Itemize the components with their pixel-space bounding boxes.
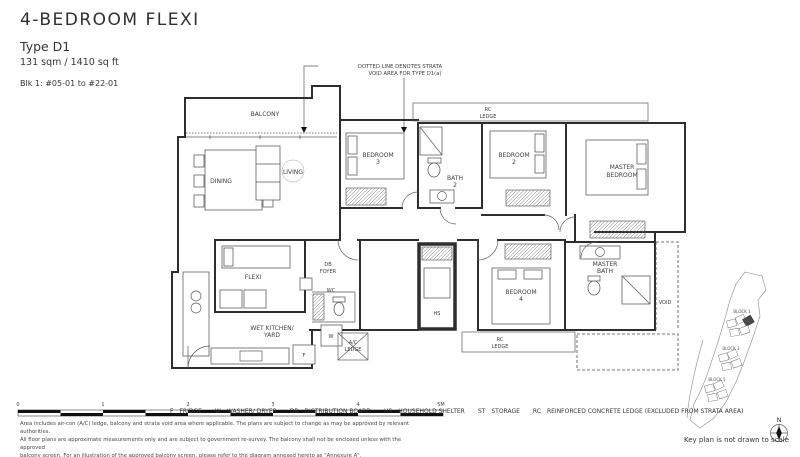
legend-abbr-rc: RC (533, 408, 541, 415)
room-label-master-bath-1: MASTER (593, 261, 618, 268)
basin (300, 278, 312, 290)
toilet-tank (588, 276, 600, 281)
washer-label: W (329, 334, 334, 340)
kitchen-counter (183, 272, 209, 356)
annotation-line1: DOTTED LINE DENOTES STRATA (358, 64, 443, 70)
rc-ledge-top: RC LEDGE (413, 103, 648, 121)
rc-ledge-top-label1: RC (485, 107, 492, 113)
toilet (588, 281, 600, 295)
legend-abbr-w: W (215, 408, 221, 415)
flexi-room: FLEXI (220, 246, 290, 308)
compass-north-label: N (777, 416, 782, 424)
void-dashed-outline (577, 334, 678, 370)
bedroom-3: BEDROOM 3 (346, 133, 418, 208)
disclaimer-line3: balcony screen. For an illustration of t… (20, 452, 420, 457)
room-label-bath2-1: BATH (447, 175, 463, 182)
key-plan-note: Key plan is not drawn to scale (684, 436, 789, 444)
bedroom-4: BEDROOM 4 (478, 240, 551, 324)
site-road (687, 340, 703, 418)
disclaimer: Area includes air-con (A/C) ledge, balco… (20, 420, 420, 457)
balcony: BALCONY (186, 111, 337, 139)
floor-plan-page: 4-BEDROOM FLEXI Type D1 131 sqm / 1410 s… (0, 0, 800, 457)
room-label-balcony: BALCONY (251, 111, 280, 118)
legend-abbr-st: ST (478, 408, 485, 415)
foyer: DB FOYER (300, 240, 358, 290)
toilet (428, 163, 440, 177)
bath-2: BATH 2 (420, 127, 463, 224)
master-bedroom: MASTER BEDROOM (560, 140, 648, 238)
room-label-bath2-2: 2 (453, 182, 457, 189)
door-arc (544, 215, 559, 230)
disclaimer-line2: All floor plans are approximate measurem… (20, 436, 420, 452)
wardrobe (590, 221, 645, 238)
leader-arrow-icon (301, 127, 307, 133)
master-bath: MASTER BATH (580, 242, 650, 304)
room-label-bedroom2-2: 2 (512, 159, 516, 166)
room-label-bedroom4-1: BEDROOM (505, 289, 536, 296)
legend-label-washer-dryer: WASHER/ DRYER (227, 408, 277, 415)
room-label-wet-kitchen-2: YARD (263, 332, 280, 339)
tv-console (256, 146, 280, 200)
rc-ledge-bottom: RC LEDGE (462, 332, 575, 352)
key-plan-block3-label: BLOCK 3 (722, 346, 740, 351)
shower-tiles (313, 294, 324, 320)
door-arc (402, 192, 418, 208)
wardrobe (505, 244, 551, 259)
legend-label-rc-ledge: REINFORCED CONCRETE LEDGE (EXCLUDED FROM… (547, 408, 743, 415)
ac-ledge-label1: A/C (349, 340, 358, 346)
key-plan: BLOCK 1 BLOCK 3 BLOCK 5 (687, 272, 766, 428)
legend-label-distribution-board: DISTRIBUTION BOARD (305, 408, 371, 415)
scale-tick-0: 0 (16, 402, 19, 408)
room-label-bedroom3-2: 3 (376, 159, 380, 166)
room-label-db: DB (324, 262, 332, 268)
room-label-void: VOID (659, 300, 672, 306)
room-label-master-1: MASTER (610, 164, 635, 171)
disclaimer-line1: Area includes air-con (A/C) ledge, balco… (20, 420, 420, 436)
shelf (422, 247, 452, 260)
room-label-flexi: FLEXI (245, 274, 262, 281)
key-plan-block1-label: BLOCK 1 (733, 309, 751, 314)
wc: WC (312, 288, 355, 322)
door-arc (560, 217, 575, 232)
door-arc (478, 240, 498, 260)
scale-tick-1: 1 (101, 402, 104, 408)
rc-ledge-bottom-label2: LEDGE (492, 344, 509, 350)
room-label-master-bath-2: BATH (597, 268, 613, 275)
legend-abbr-hs: HS (384, 408, 392, 415)
room-label-bedroom3-1: BEDROOM (362, 152, 393, 159)
toilet-tank (428, 158, 441, 163)
wardrobe (506, 190, 550, 206)
legend-label-fridge: FRIDGE (179, 408, 201, 415)
cabinet (244, 290, 266, 308)
vanity (580, 246, 620, 259)
toilet-tank (333, 297, 345, 302)
room-label-master-2: BEDROOM (606, 172, 637, 179)
room-label-living: LIVING (283, 169, 303, 176)
room-label-dining: DINING (210, 178, 232, 185)
door-arc (440, 208, 456, 224)
legend: FFRIDGE WWASHER/ DRYER DBDISTRIBUTION BO… (170, 408, 756, 415)
kitchen-counter (211, 348, 289, 364)
legend-label-household-shelter: HOUSEHOLD SHELTER (398, 408, 465, 415)
room-label-bedroom2-1: BEDROOM (498, 152, 529, 159)
room-label-foyer: FOYER (320, 269, 337, 275)
key-plan-block5-label: BLOCK 5 (708, 377, 726, 382)
legend-label-storage: STORAGE (491, 408, 520, 415)
entry-door-arc (338, 240, 358, 260)
cabinet (220, 290, 242, 308)
wardrobe (346, 188, 386, 205)
desk (424, 268, 450, 298)
rc-ledge-bottom-label1: RC (497, 337, 504, 343)
room-label-wet-kitchen-1: WET KITCHEN/ (250, 325, 294, 332)
living-dining: DINING LIVING (194, 146, 304, 210)
annotation-line2: VOID AREA FOR TYPE D1(a) (368, 71, 441, 77)
rc-ledge-top-label2: LEDGE (480, 114, 497, 120)
room-label-wc: WC (327, 288, 336, 294)
room-label-hs: HS (434, 311, 441, 317)
household-shelter: HS (422, 247, 452, 317)
legend-abbr-db: DB (290, 408, 299, 415)
fridge-label: F (303, 353, 306, 359)
void-dashed-outline (656, 242, 678, 330)
ac-ledge: A/C LEDGE (338, 333, 368, 360)
toilet (334, 303, 344, 316)
legend-abbr-f: F (170, 408, 173, 415)
vanity (430, 190, 454, 203)
ac-ledge-label2: LEDGE (345, 347, 362, 353)
leader-arrow-icon (401, 127, 407, 133)
room-label-bedroom4-2: 4 (519, 296, 523, 303)
floor-plan-drawing: DOTTED LINE DENOTES STRATA VOID AREA FOR… (0, 0, 800, 457)
